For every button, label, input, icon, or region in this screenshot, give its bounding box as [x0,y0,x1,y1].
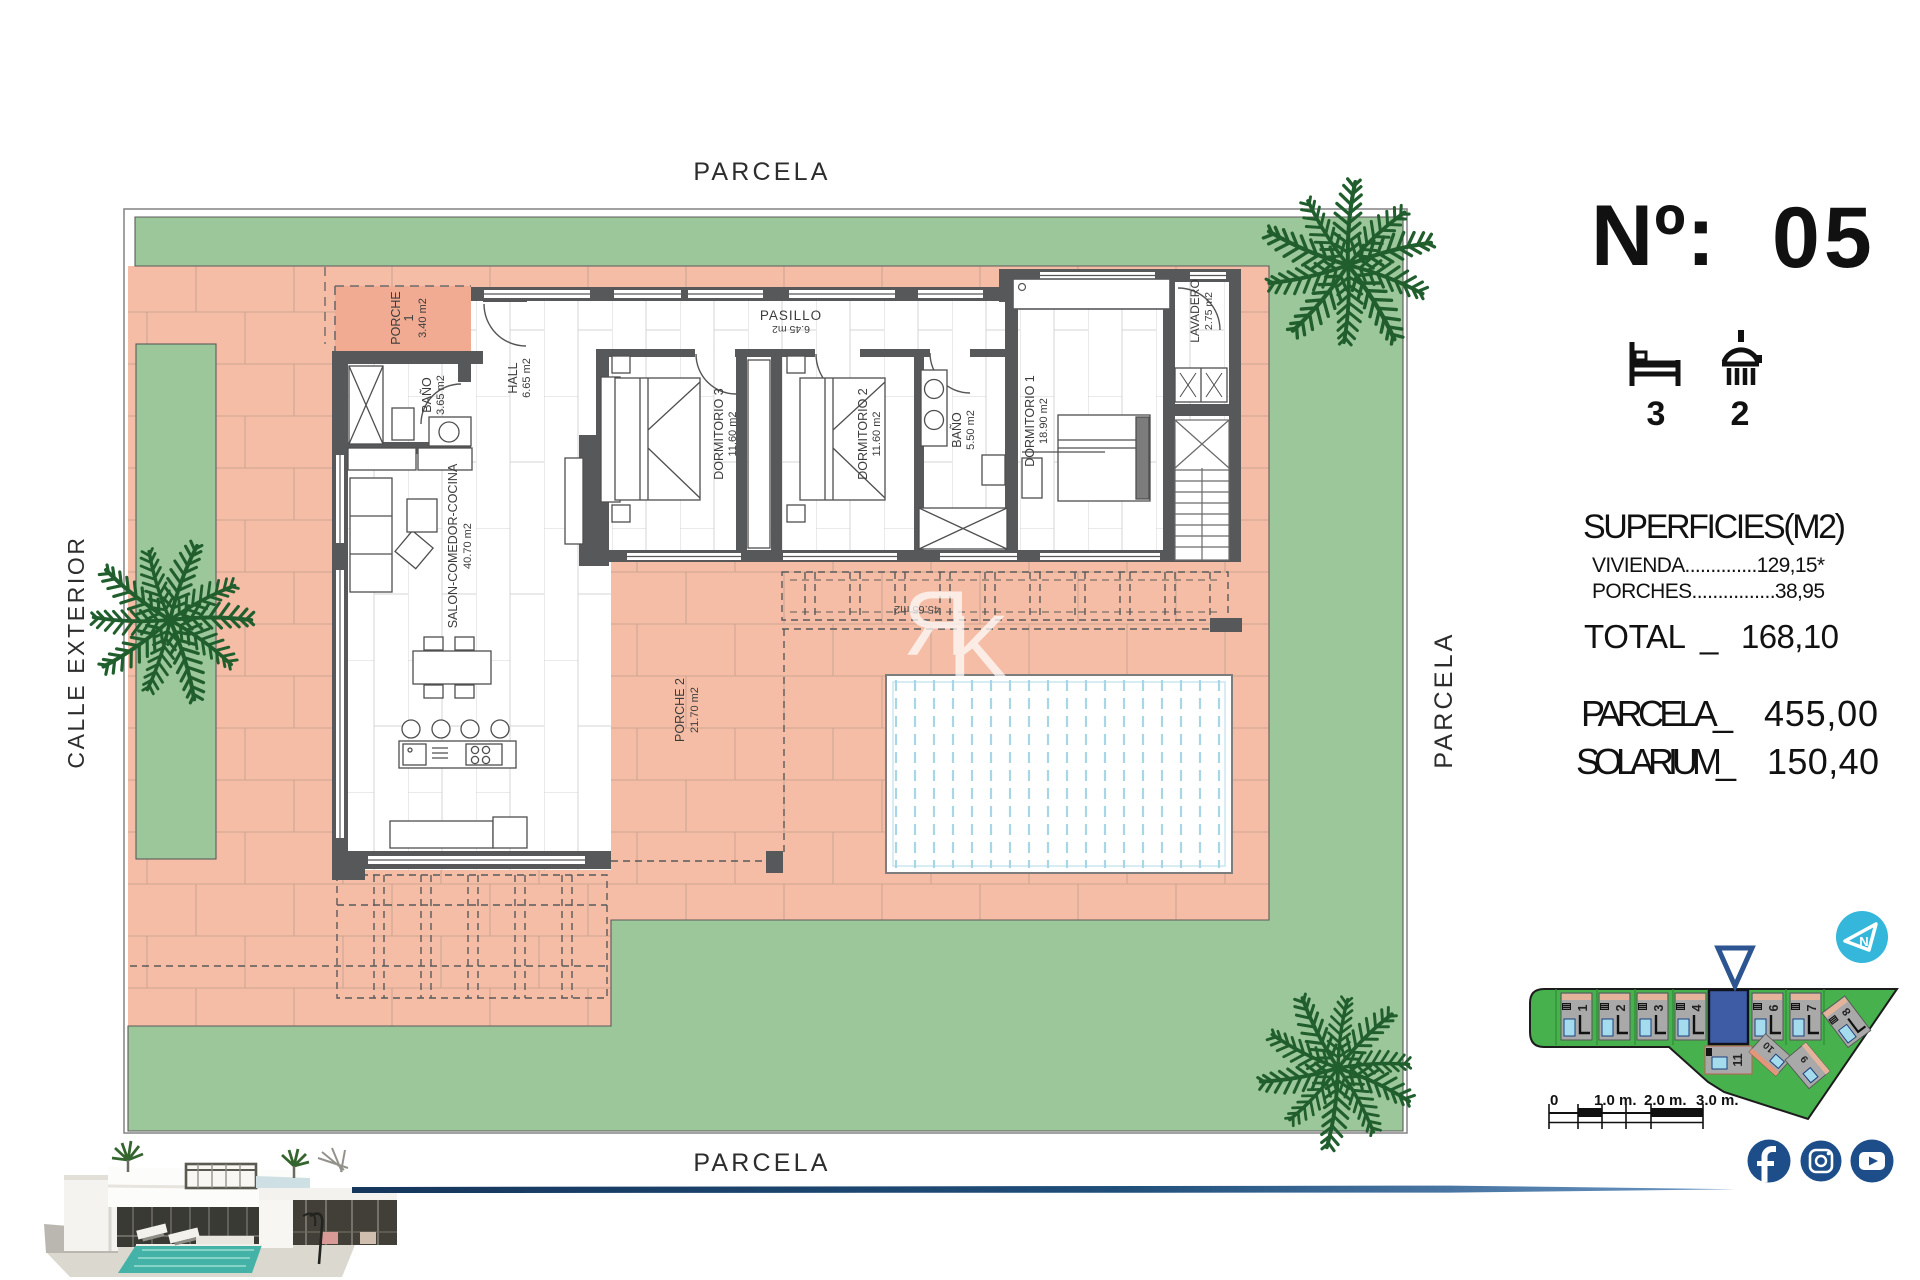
svg-text:11.60 m2: 11.60 m2 [871,411,883,456]
svg-text:TOTAL: TOTAL [1584,618,1686,655]
svg-text:05: 05 [1772,190,1876,286]
svg-text:5.50 m2: 5.50 m2 [965,410,977,450]
svg-text:N: N [1859,934,1868,949]
svg-text:_: _ [1699,618,1719,655]
svg-text:3: 3 [1647,395,1666,433]
svg-text:4: 4 [1690,1004,1704,1011]
svg-text:BAÑO: BAÑO [420,377,434,413]
svg-text:HALL: HALL [506,362,520,393]
svg-text:21.70 m2: 21.70 m2 [689,687,701,733]
svg-text:PARCELA: PARCELA [1430,631,1458,768]
svg-text:18.90 m2: 18.90 m2 [1038,398,1050,444]
svg-text:6.65 m2: 6.65 m2 [521,358,533,398]
svg-text:6.45 m2: 6.45 m2 [772,323,810,335]
svg-text:PASILLO: PASILLO [760,308,822,323]
svg-text:PARCELA: PARCELA [693,158,830,186]
svg-text:1: 1 [402,314,416,321]
svg-text:PARCELA_: PARCELA_ [1581,693,1734,734]
svg-text:DORMITORIO 2: DORMITORIO 2 [856,388,870,479]
svg-text:DORMITORIO 1: DORMITORIO 1 [1023,375,1037,466]
svg-text:455,00: 455,00 [1764,693,1878,734]
svg-text:2: 2 [1731,395,1750,433]
svg-text:DORMITORIO 3: DORMITORIO 3 [712,388,726,479]
svg-text:1: 1 [1576,1004,1590,1011]
svg-text:150,40: 150,40 [1767,741,1879,782]
svg-text:K: K [948,597,1009,699]
svg-text:PORCHES................38,95: PORCHES................38,95 [1592,580,1825,603]
svg-text:BAÑO: BAÑO [950,412,964,448]
svg-text:3.65 m2: 3.65 m2 [435,375,447,415]
svg-text:CALLE EXTERIOR: CALLE EXTERIOR [63,535,89,768]
svg-text:1.0 m.: 1.0 m. [1594,1092,1637,1109]
svg-text:2: 2 [1614,1004,1628,1011]
svg-text:2.75 m2: 2.75 m2 [1203,292,1215,330]
svg-text:SOLARIUM_: SOLARIUM_ [1576,741,1737,782]
svg-text:SALON-COMEDOR-COCINA: SALON-COMEDOR-COCINA [446,463,460,628]
svg-text:0: 0 [1550,1092,1558,1109]
svg-text:3: 3 [1652,1004,1666,1011]
svg-text:11.60 m2: 11.60 m2 [727,411,739,456]
svg-text:VIVIENDA..............129,15*: VIVIENDA..............129,15* [1592,554,1825,577]
svg-text:3.40 m2: 3.40 m2 [417,298,429,338]
svg-text:PORCHE 2: PORCHE 2 [673,678,687,742]
svg-text:168,10: 168,10 [1741,618,1839,655]
svg-text:PARCELA: PARCELA [693,1149,830,1177]
svg-text:PORCHE: PORCHE [389,291,403,344]
svg-text:7: 7 [1805,1004,1819,1011]
svg-text:LAVADERO: LAVADERO [1188,279,1202,343]
svg-text:11: 11 [1731,1053,1745,1066]
svg-text:6: 6 [1767,1004,1781,1011]
svg-text:Nº:: Nº: [1591,188,1716,284]
svg-text:40.70 m2: 40.70 m2 [462,523,474,569]
svg-text:SUPERFICIES(M2): SUPERFICIES(M2) [1583,508,1846,546]
